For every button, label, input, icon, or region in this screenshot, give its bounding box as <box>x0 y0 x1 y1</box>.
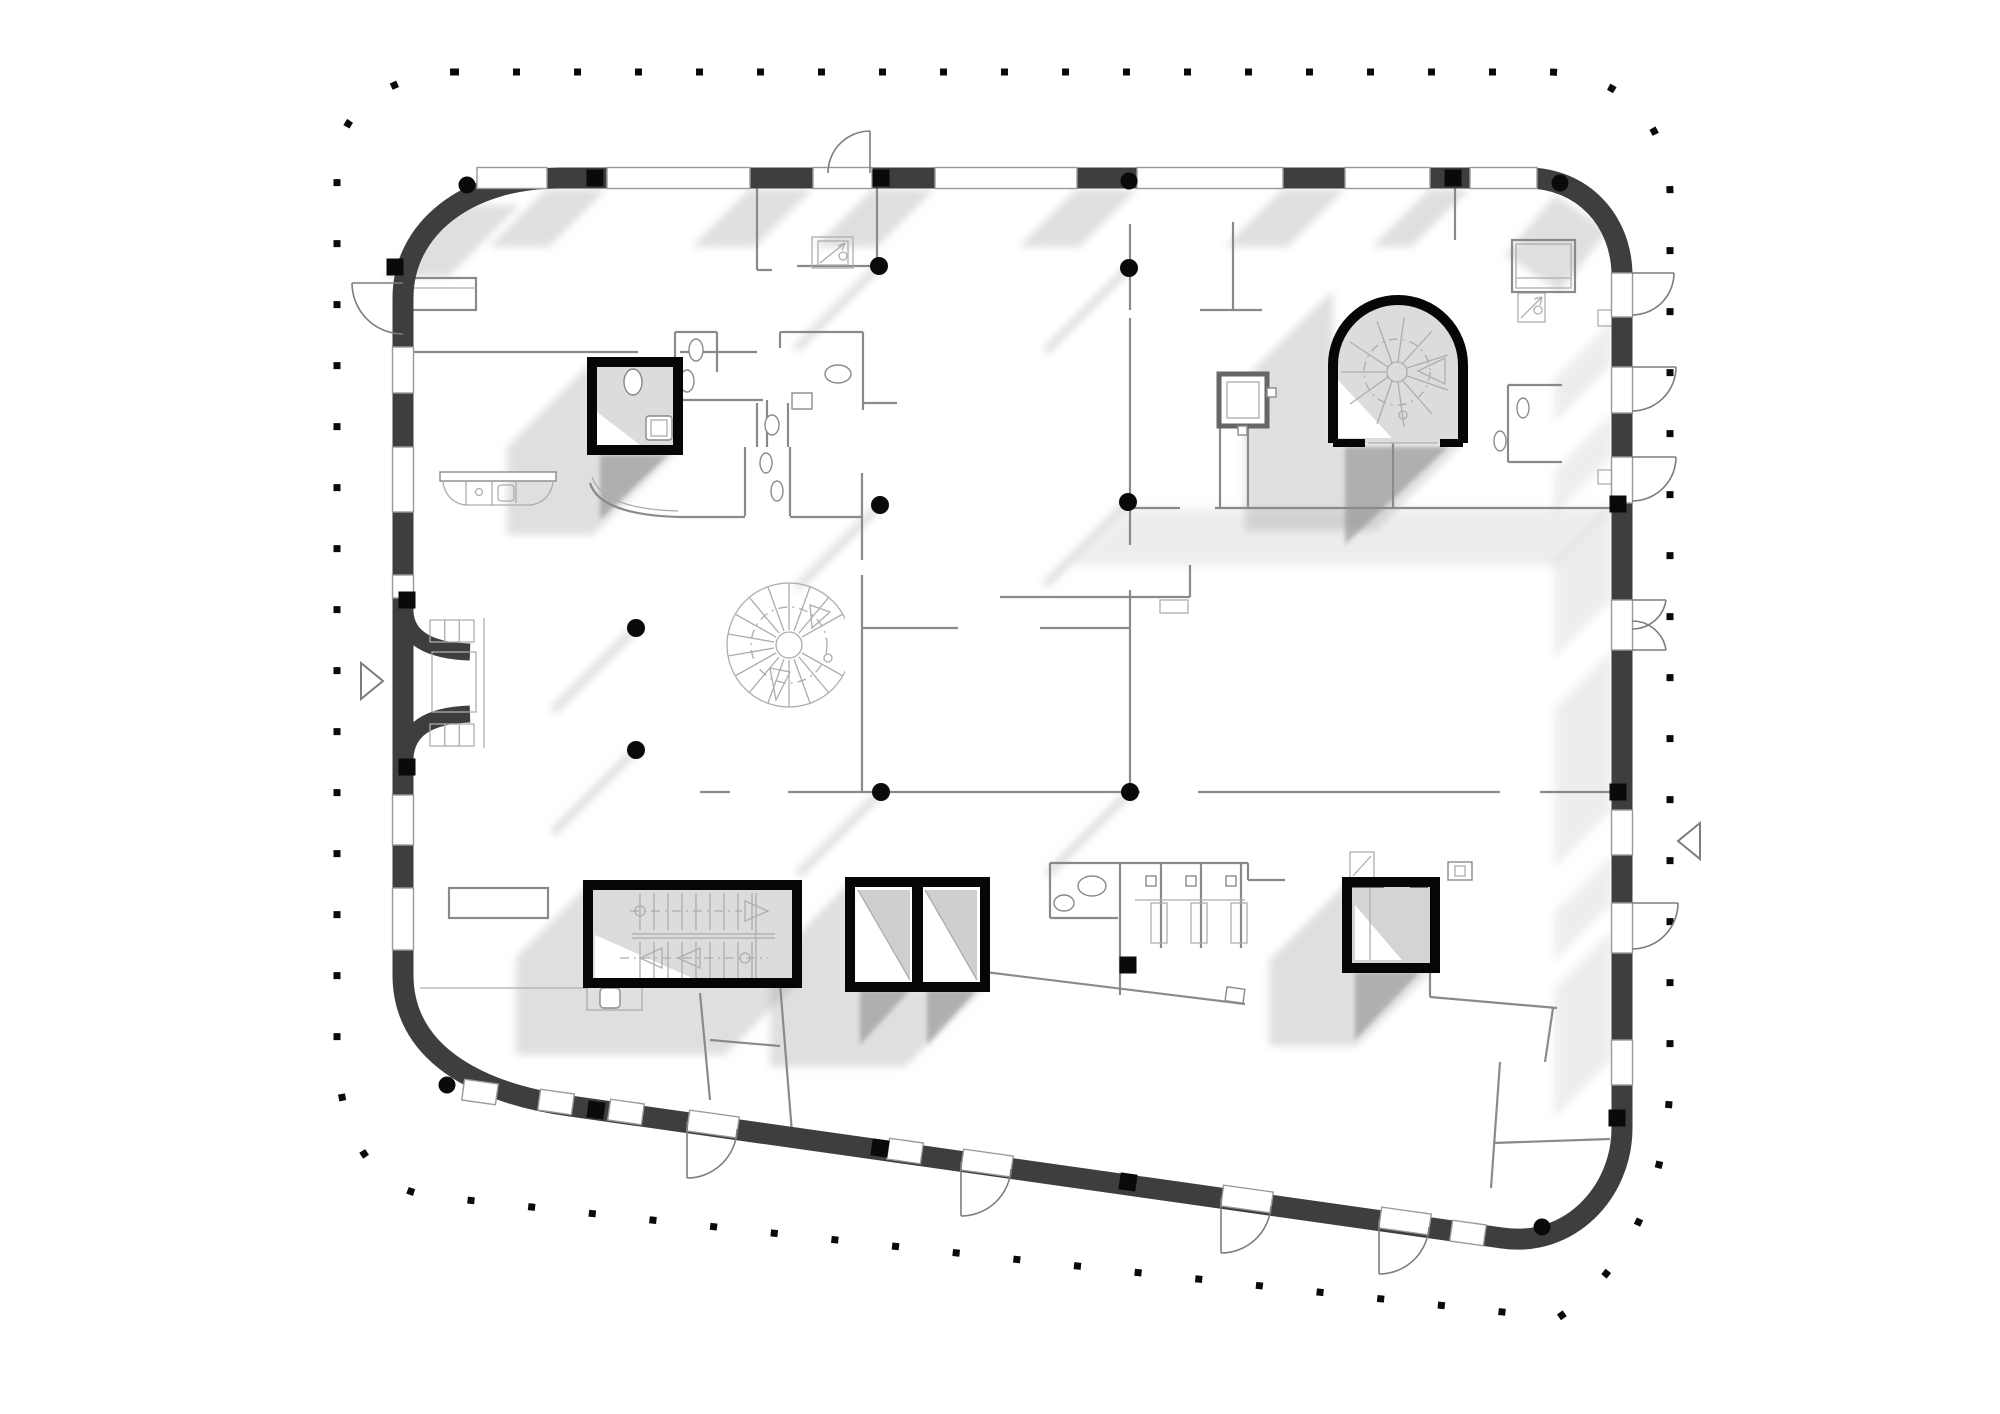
straight-stair-core <box>588 885 797 983</box>
floor-plan-drawing <box>0 0 2000 1414</box>
arched-stair-core <box>1333 300 1463 443</box>
entrance-recess <box>430 618 484 748</box>
wc-core <box>592 362 678 450</box>
left-entry-triangle-marker <box>361 663 383 699</box>
central-spiral-stair <box>727 583 857 707</box>
right-entry-triangle-marker <box>1678 823 1700 859</box>
floor-plan-page <box>0 0 2000 1414</box>
elevator-core-double <box>850 882 985 987</box>
site-boundary <box>337 72 1670 1318</box>
elevator-core-single <box>1347 882 1435 968</box>
